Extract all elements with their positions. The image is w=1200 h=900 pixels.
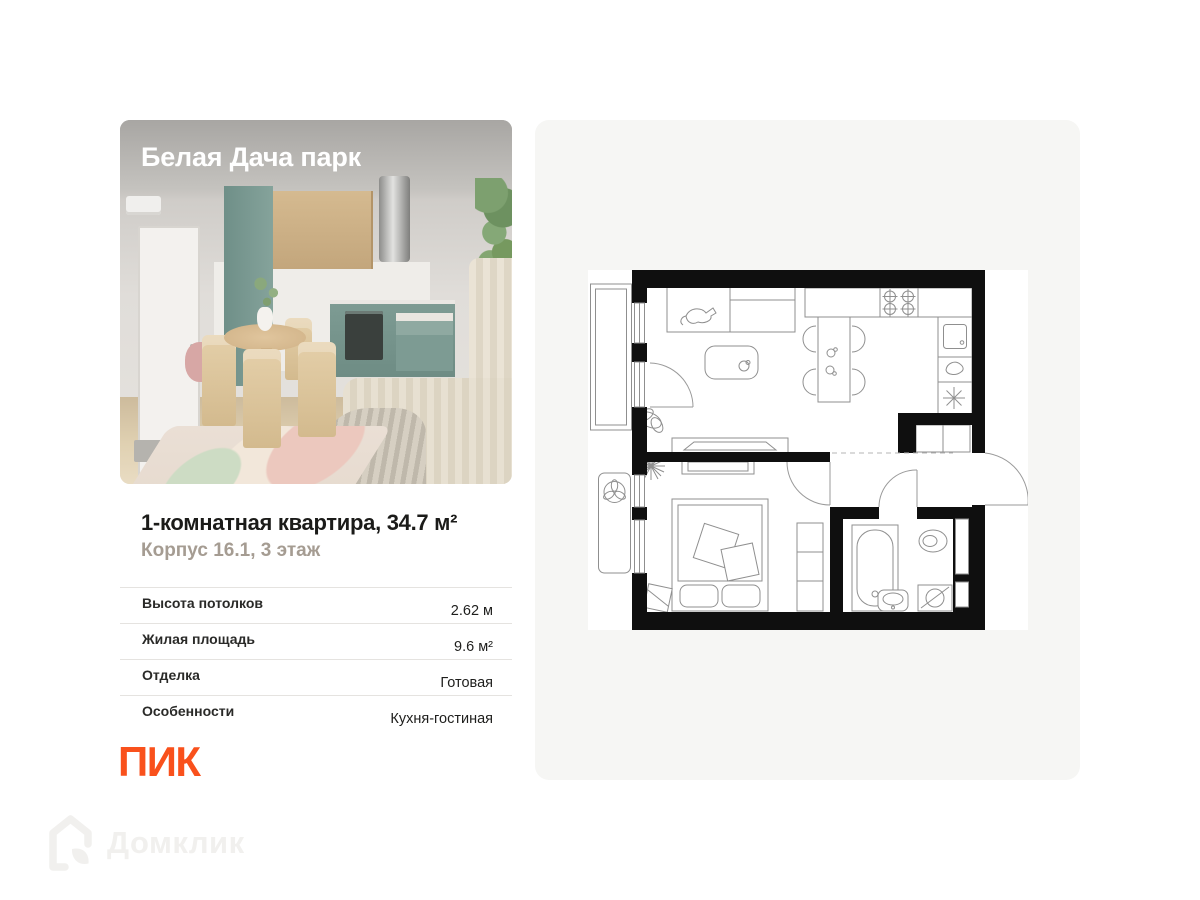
spec-label: Высота потолков: [142, 595, 263, 611]
spec-value: Кухня-гостиная: [390, 711, 493, 727]
photo-headboard: [469, 258, 512, 389]
domclick-house-icon: [46, 812, 94, 874]
sofa-icon: [667, 282, 795, 332]
photo-upper-cabinets: [273, 191, 373, 269]
photo-shelf-unit: [396, 313, 453, 371]
spec-value: 2.62 м: [451, 603, 493, 619]
photo-chair: [202, 335, 235, 426]
spec-row-ceiling-height: Высота потолков 2.62 м: [120, 587, 512, 623]
spec-row-features: Особенности Кухня-гостиная: [120, 695, 512, 731]
photo-oven: [345, 311, 382, 360]
coffee-table-icon: [705, 346, 758, 379]
toilet-icon: [919, 530, 947, 552]
balcony: [591, 284, 632, 573]
air-conditioner-icon: [602, 480, 627, 503]
spec-row-finishing: Отделка Готовая: [120, 659, 512, 695]
apartment-photo: Белая Дача парк: [120, 120, 512, 484]
domclick-watermark: Домклик: [46, 812, 245, 874]
washing-machine-icon: [918, 585, 952, 611]
photo-vase: [257, 307, 273, 331]
vent-shaft: [956, 519, 969, 607]
spec-row-living-area: Жилая площадь 9.6 м²: [120, 623, 512, 659]
photo-kitchen-hood: [379, 176, 410, 262]
stove-icon: [883, 289, 916, 317]
photo-air-conditioner: [126, 196, 161, 214]
spec-value: 9.6 м²: [454, 639, 493, 655]
fridge-icon: [943, 387, 965, 409]
photo-chair: [243, 349, 280, 447]
specs-table: Высота потолков 2.62 м Жилая площадь 9.6…: [120, 587, 512, 731]
wardrobe-icon: [797, 523, 823, 611]
floorplan: [588, 270, 1028, 630]
listing-card: Белая Дача парк 1-комнатная квартира, 34…: [0, 0, 1200, 900]
spec-label: Особенности: [142, 703, 234, 719]
domclick-wordmark: Домклик: [107, 825, 245, 861]
bed-icon: [672, 499, 768, 611]
developer-logo-pik: ПИК: [118, 741, 200, 783]
bathroom-sink-icon: [878, 590, 908, 611]
listing-title: 1-комнатная квартира, 34.7 м²: [141, 510, 457, 536]
spec-label: Отделка: [142, 667, 200, 683]
listing-subtitle: Корпус 16.1, 3 этаж: [141, 540, 320, 562]
floorplan-drawing: [588, 270, 1028, 630]
spec-label: Жилая площадь: [142, 631, 255, 647]
spec-value: Готовая: [440, 675, 493, 691]
floorplan-panel: [535, 120, 1080, 780]
nightstand-icon: [644, 584, 672, 612]
dining-table-icon: [818, 317, 850, 402]
hall-closet: [916, 425, 970, 452]
project-name-label: Белая Дача парк: [141, 142, 361, 173]
photo-chair: [298, 342, 335, 437]
photo-vase-plant: [251, 273, 282, 309]
kettle-icon: [946, 362, 963, 374]
kitchen-sink-icon: [944, 325, 967, 349]
